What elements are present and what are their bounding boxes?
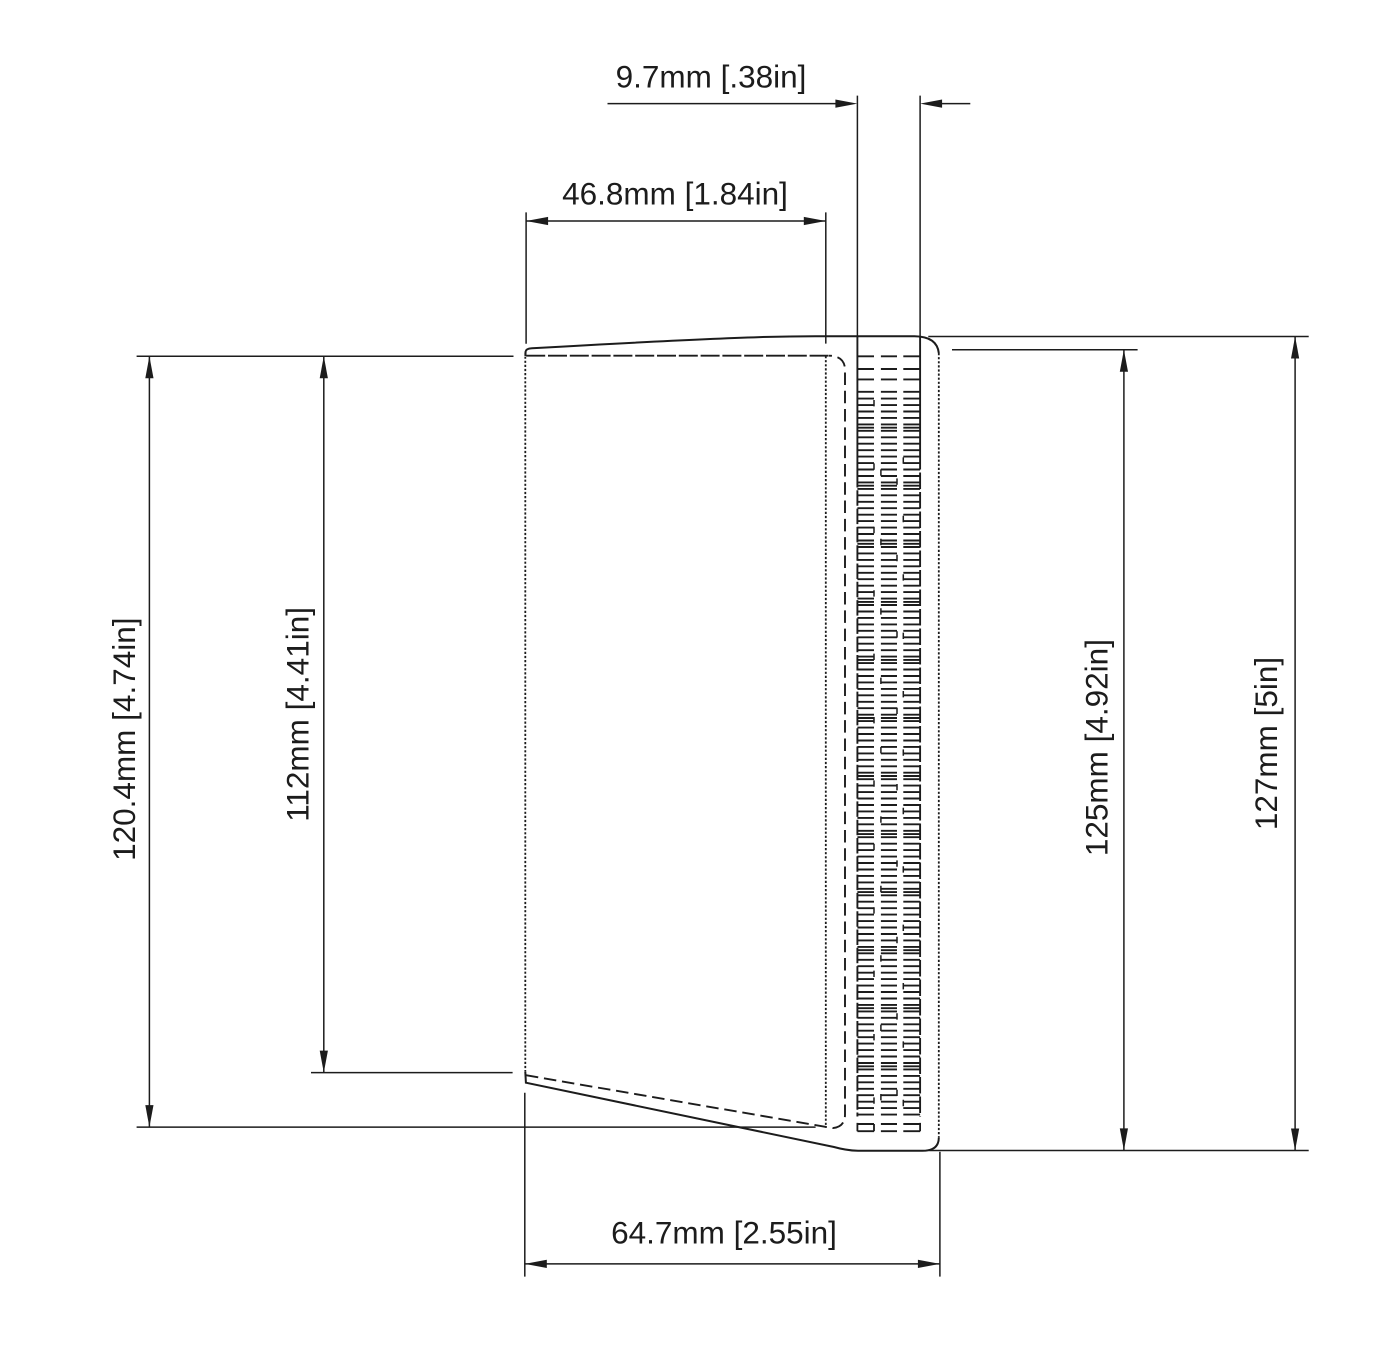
svg-text:120.4mm [4.74in]: 120.4mm [4.74in] xyxy=(106,618,142,861)
svg-text:64.7mm [2.55in]: 64.7mm [2.55in] xyxy=(611,1215,837,1251)
svg-text:46.8mm [1.84in]: 46.8mm [1.84in] xyxy=(562,176,788,212)
svg-text:9.7mm [.38in]: 9.7mm [.38in] xyxy=(616,58,807,94)
svg-text:125mm [4.92in]: 125mm [4.92in] xyxy=(1079,639,1115,856)
svg-text:112mm [4.41in]: 112mm [4.41in] xyxy=(280,607,316,822)
svg-text:127mm [5in]: 127mm [5in] xyxy=(1248,657,1284,830)
